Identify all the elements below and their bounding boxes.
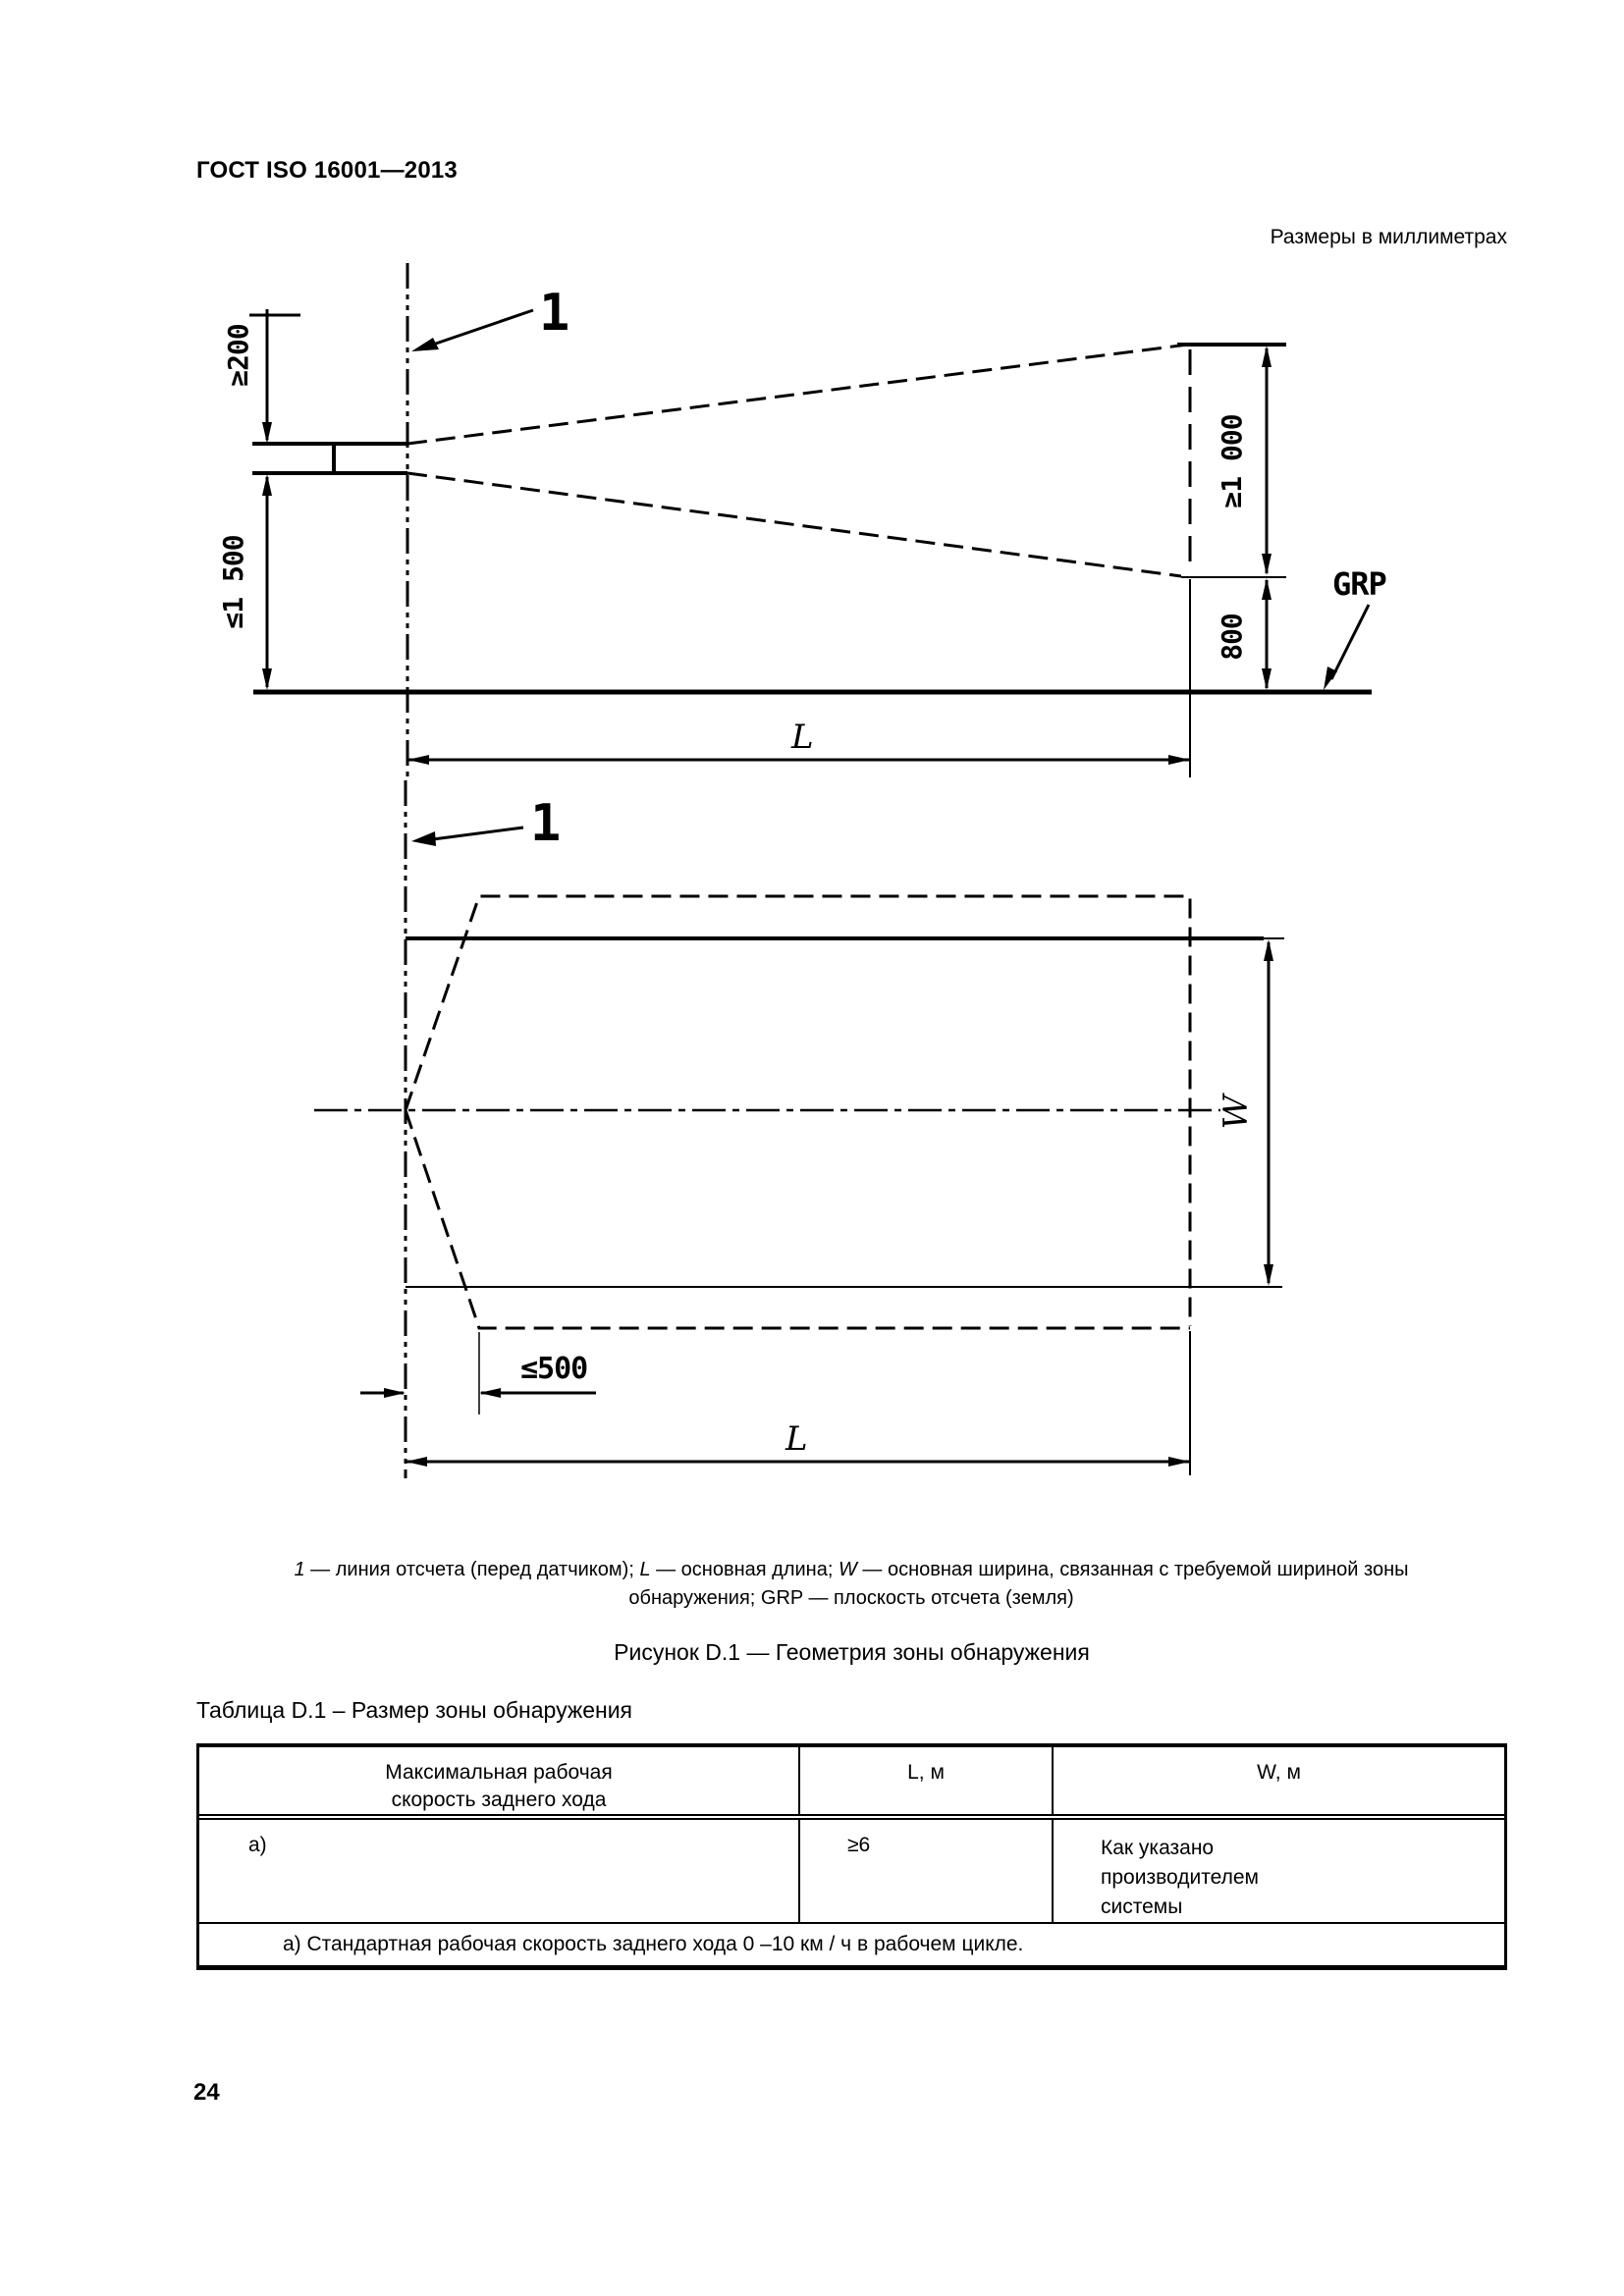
table-header-row: Максимальная рабочая скорость заднего хо… <box>199 1747 1504 1820</box>
dim-label-200: ≥200 <box>222 324 254 387</box>
plan-view-diagram: 1 W ≤500 <box>314 780 1284 1478</box>
cell-w-value: Как указано производителем системы <box>1054 1820 1504 1922</box>
dim-lateral-offset: ≤500 <box>360 1332 596 1415</box>
callout-label: 1 <box>539 284 569 343</box>
cell-l-value: ≥6 <box>800 1820 1054 1922</box>
figure-caption-line2: обнаружения; GRP — плоскость отсчета (зе… <box>206 1584 1496 1613</box>
units-note: Размеры в миллиметрах <box>884 226 1507 249</box>
dim-length-bottom: L <box>406 1331 1190 1475</box>
header-max-speed: Максимальная рабочая скорость заднего хо… <box>199 1747 800 1814</box>
dim-label-1000: ≥1 000 <box>1216 414 1248 507</box>
page-number: 24 <box>193 2079 220 2107</box>
table-footnote: а) Стандартная рабочая скорость заднего … <box>199 1924 1504 1965</box>
dim-length-top: L <box>407 718 1190 765</box>
figure-caption: 1 — линия отсчета (перед датчиком); L — … <box>206 1556 1496 1613</box>
caption-sym-W: W <box>839 1559 857 1580</box>
zone-lower-boundary <box>407 473 1181 576</box>
dim-label-1500: ≤1 500 <box>217 535 249 628</box>
sensor-symbol <box>252 444 407 473</box>
callout-1-bottom: 1 <box>411 794 561 853</box>
length-label-bottom: L <box>785 1419 808 1459</box>
header-W: W, м <box>1054 1747 1504 1814</box>
figure-caption-line1: 1 — линия отсчета (перед датчиком); L — … <box>206 1556 1496 1584</box>
callout-1-top: 1 <box>411 284 569 351</box>
grp-callout: GRP <box>1324 565 1386 690</box>
dim-width: W <box>1217 939 1273 1286</box>
zone-upper-boundary <box>407 345 1188 444</box>
figure-title: Рисунок D.1 — Геометрия зоны обнаружения <box>196 1639 1507 1666</box>
length-label-top: L <box>790 718 814 757</box>
caption-ref-1: 1 <box>294 1559 304 1580</box>
grp-label: GRP <box>1332 565 1386 603</box>
zone-outline-lower <box>406 1110 1190 1328</box>
header-L: L, м <box>800 1747 1054 1814</box>
table-row: а) ≥6 Как указано производителем системы <box>199 1820 1504 1922</box>
cell-speed: а) <box>199 1820 800 1922</box>
dim-sensor-height: ≥200 <box>222 309 300 444</box>
caption-sym-L: L <box>639 1559 650 1580</box>
width-label: W <box>1217 1092 1256 1129</box>
side-view-diagram: 1 ≥200 ≤1 500 <box>217 263 1386 777</box>
dim-label-500: ≤500 <box>520 1352 587 1386</box>
table-footnote-row: а) Стандартная рабочая скорость заднего … <box>199 1922 1504 1965</box>
callout-label: 1 <box>530 794 561 853</box>
zone-outline-upper <box>406 896 1190 1326</box>
dim-sensor-to-ground: ≤1 500 <box>217 474 272 690</box>
document-header: ГОСТ ISO 16001—2013 <box>196 157 458 185</box>
dim-label-800: 800 <box>1216 614 1248 661</box>
dim-zone-rear-height: 800 <box>1216 578 1272 690</box>
dim-zone-top-height: ≥1 000 <box>1216 346 1272 575</box>
table-title: Таблица D.1 – Размер зоны обнаружения <box>196 1697 632 1724</box>
table-d1: Максимальная рабочая скорость заднего хо… <box>196 1743 1507 1970</box>
